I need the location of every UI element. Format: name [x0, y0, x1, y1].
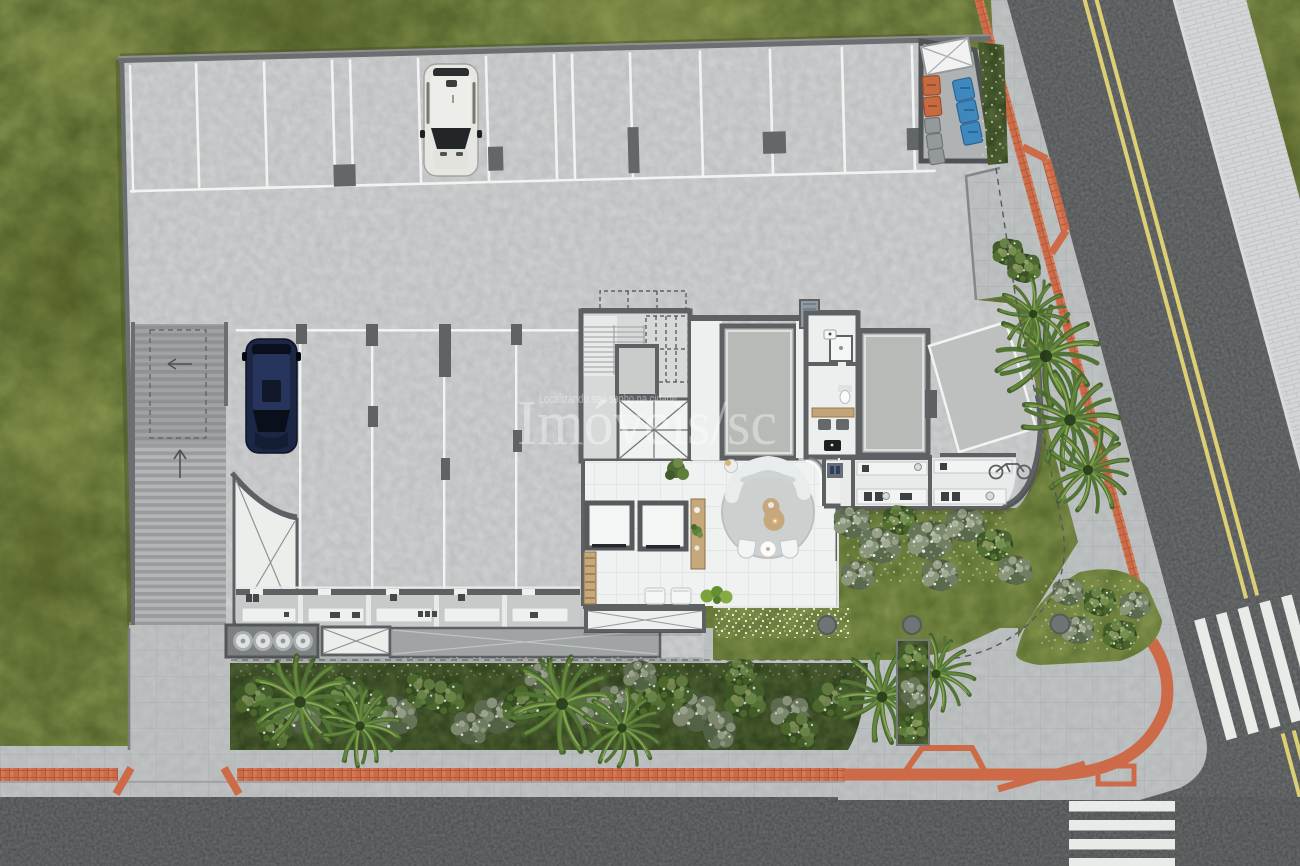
- svg-text:Imóveis/sc: Imóveis/sc: [517, 387, 777, 458]
